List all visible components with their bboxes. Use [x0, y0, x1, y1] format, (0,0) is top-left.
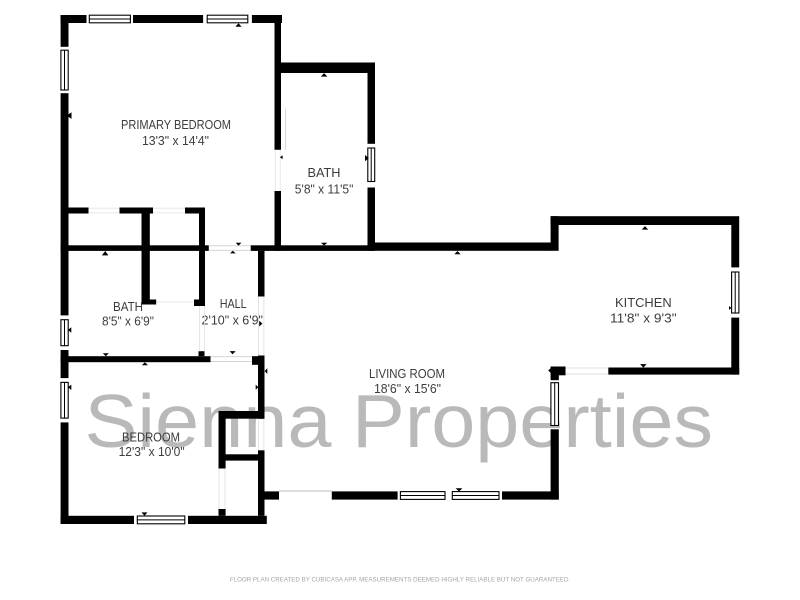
svg-text:11'8" x 9'3": 11'8" x 9'3"	[610, 312, 677, 326]
svg-text:PRIMARY BEDROOM: PRIMARY BEDROOM	[121, 118, 231, 132]
svg-text:BEDROOM: BEDROOM	[122, 431, 180, 445]
svg-text:8'5" x 6'9": 8'5" x 6'9"	[102, 315, 154, 329]
svg-text:FLOOR PLAN CREATED BY CUBICASA: FLOOR PLAN CREATED BY CUBICASA APP. MEAS…	[230, 577, 571, 584]
svg-text:BATH: BATH	[113, 300, 143, 314]
svg-text:2'10" x 6'9": 2'10" x 6'9"	[202, 314, 264, 328]
svg-text:BATH: BATH	[308, 166, 341, 180]
svg-text:HALL: HALL	[220, 297, 247, 311]
svg-text:KITCHEN: KITCHEN	[615, 296, 672, 310]
svg-text:13'3" x 14'4": 13'3" x 14'4"	[142, 134, 209, 148]
svg-text:12'3" x 10'0": 12'3" x 10'0"	[119, 445, 185, 459]
svg-text:5'8" x 11'5": 5'8" x 11'5"	[295, 183, 354, 197]
svg-text:18'6" x 15'6": 18'6" x 15'6"	[374, 382, 441, 396]
svg-text:LIVING ROOM: LIVING ROOM	[369, 367, 445, 381]
